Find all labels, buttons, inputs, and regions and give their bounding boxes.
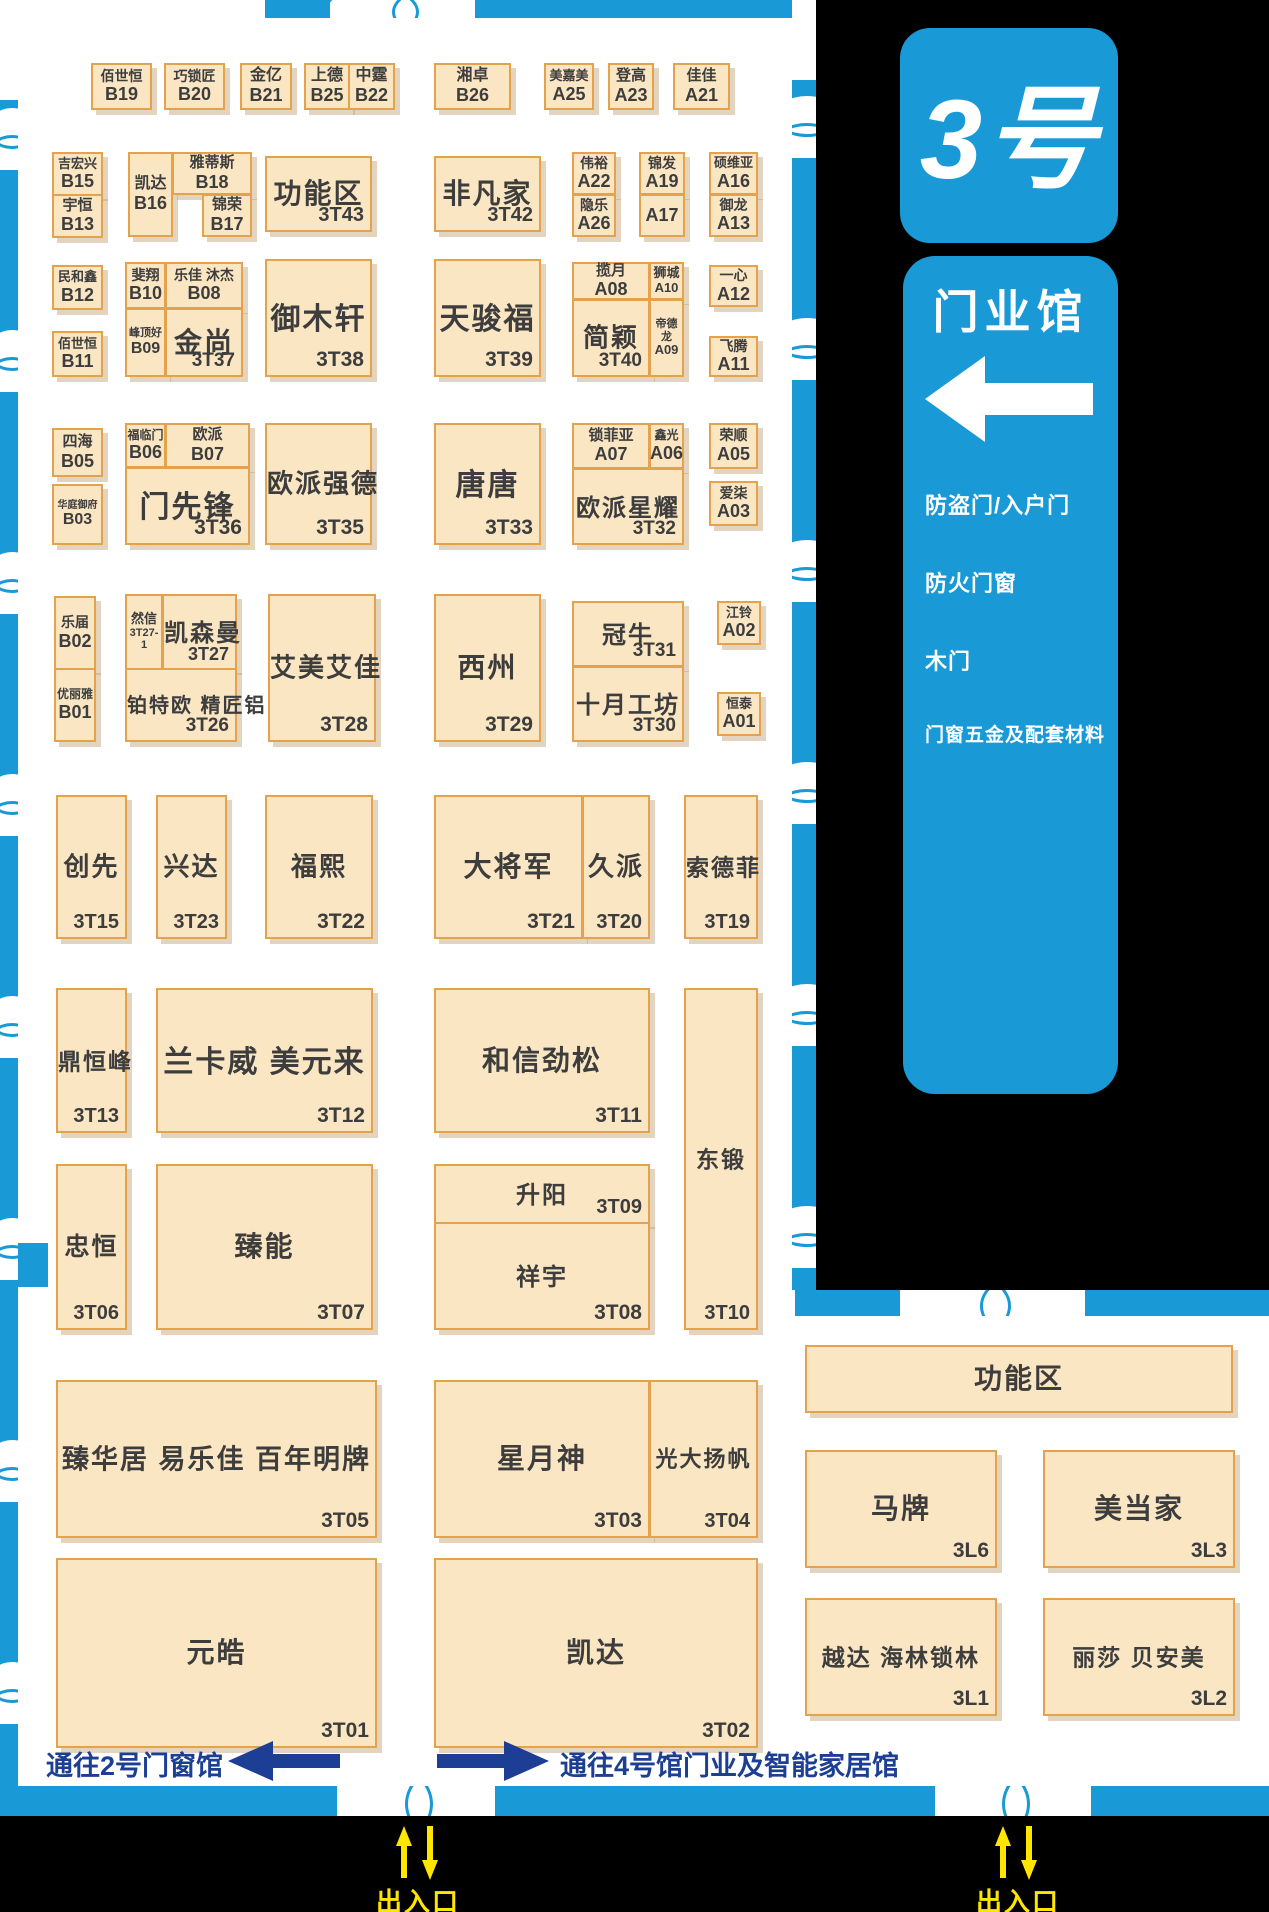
booth-3T22: 福熙3T22 [265,795,373,939]
booth-A16: 硕维亚A16 [709,152,758,195]
booth-name: 宇恒 [62,198,92,215]
gate-lens [0,135,18,170]
gate-lens [405,1786,495,1816]
booth-3L1: 越达 海林锁林3L1 [805,1598,997,1716]
booth-B11: 佰世恒B11 [52,331,103,377]
booth-name: 乐佳 沐杰 [174,268,234,284]
booth-name: 雅蒂斯 [189,155,234,172]
booth-A09: 帝德龙A09 [649,299,684,377]
booth-3T40: 简颖3T40 [572,299,650,377]
booth-name: 一心 [720,268,748,284]
gate-marker [792,540,816,602]
booth-id: B20 [178,84,211,104]
gate-marker [0,552,18,614]
booth-id: A08 [594,279,627,299]
booth-id: A05 [717,444,750,464]
gate-lens [0,1467,18,1502]
booth-id: 3T04 [704,1510,750,1533]
booth-id: A13 [717,213,750,233]
booth-B07: 欧派B07 [165,423,250,468]
booth-id: 3T43 [318,204,364,227]
booth-id: 3T09 [596,1196,642,1219]
booth-id: B16 [134,193,167,213]
booth-A11: 飞腾A11 [709,336,758,377]
border-strip-middle [792,80,816,1290]
booth-name: 御龙 [720,198,748,214]
gate-lens [392,0,475,18]
booth-name: 帝德龙 [651,318,682,343]
booth-3T06: 忠恒3T06 [56,1164,127,1330]
arrow-left-icon [228,1741,340,1786]
gate-lens [0,579,18,614]
booth-id: B07 [191,444,224,464]
booth-3T43: 功能区3T43 [265,156,372,232]
booth-id: B25 [310,85,343,105]
booth-name: 佰世恒 [101,69,143,85]
booth-id: A12 [717,284,750,304]
booth-name: 乐届 [61,615,89,631]
booth-name: 硕维亚 [714,156,753,171]
booth-3T32: 欧派星耀3T32 [572,468,684,545]
booth-3T13: 鼎恒峰3T13 [56,988,127,1133]
hall-name-label: 门业馆 [903,276,1118,342]
booth-id: 3T35 [316,516,364,540]
booth-3T09: 升阳3T09 [434,1164,650,1224]
booth-id: 3T03 [594,1509,642,1533]
booth-id: 3T31 [633,640,676,662]
booth-name: 凯森曼 [164,613,235,648]
booth-name: 吉宏兴 [58,157,97,172]
to-hall2-label: 通往2号门窗馆 [46,1744,223,1783]
booth-id: 3T30 [633,715,676,737]
hall-number-label: 3号 [920,49,1098,211]
booth-id: 3T02 [702,1719,750,1743]
booth-B09: 峰顶好B09 [125,308,166,377]
booth-id: B06 [129,442,162,462]
booth-A03: 爱柒A03 [709,481,758,526]
gate-lens [0,1023,18,1058]
booth-3T37: 金尚3T37 [165,308,243,377]
booth-id: B08 [187,283,220,303]
booth-3T05: 臻华居 易乐佳 百年明牌3T05 [56,1380,377,1538]
booth-id: B03 [63,511,92,529]
booth-id: A03 [717,501,750,521]
booth-name: 然信 [131,612,157,627]
booth-id: B01 [58,702,91,722]
booth-name: 凯达 [134,175,166,193]
booth-name: 民和鑫 [58,270,97,285]
category-item: 门窗五金及配套材料 [925,720,1105,747]
category-item: 防火门窗 [925,566,1017,598]
booth-B08: 乐佳 沐杰B08 [165,262,243,309]
booth-3T27-1: 然信3T27-1 [125,594,163,670]
gate-lens [0,1245,18,1280]
gate-marker [330,0,475,18]
booth-id: A26 [577,213,610,233]
booth-name: 马牌 [807,1487,995,1527]
booth-3T23: 兴达3T23 [156,795,227,939]
booth-id: 3T19 [704,911,750,934]
gate-lens [0,357,18,392]
gate-marker [0,108,18,170]
entrance-label: 出入口 [976,1882,1060,1912]
booth-id: 3T37 [192,350,235,372]
gate-marker [792,984,816,1046]
booth-name: 欧派强德 [267,464,370,501]
booth-name: 巧锁匠 [174,69,216,85]
arrow-right-icon [437,1741,549,1786]
gate-marker [0,330,18,392]
booth-name: 丽莎 贝安美 [1045,1638,1233,1672]
category-item: 木门 [925,644,971,676]
gate-lens [792,1233,816,1268]
booth-B19: 佰世恒B19 [91,63,152,110]
booth-name: 鑫光 [654,429,678,442]
booth-id: 3T06 [73,1302,119,1325]
gate-lens [792,789,816,824]
booth-id: B26 [456,85,489,105]
booth-id: 3T42 [487,204,533,227]
booth-id: B12 [61,285,94,305]
booth-3T12: 兰卡威 美元来3T12 [156,988,373,1133]
booth-id: B19 [105,84,138,104]
booth-B06: 福临门B06 [125,423,166,468]
booth-id: A19 [645,171,678,191]
booth-name: 兴达 [158,847,225,884]
booth-A23: 登高A23 [608,63,654,110]
booth-A22: 伟裕A22 [572,152,616,195]
booth-name: 福临门 [127,429,163,442]
booth-name: 优丽雅 [57,688,93,701]
booth-3T28: 艾美艾佳3T28 [268,594,376,742]
booth-3T29: 西州3T29 [434,594,541,742]
booth-name: 江铃 [726,606,752,621]
booth-name: 伟裕 [580,156,608,172]
booth-name: 御木轩 [267,294,370,338]
booth-name: 美嘉美 [549,69,588,84]
booth-A06: 鑫光A06 [649,423,684,469]
gate-marker [792,96,816,158]
gate-lens [792,567,816,602]
booth-id: B02 [58,631,91,651]
booth-id: B15 [61,171,94,191]
booth-name: 荣顺 [720,428,748,444]
booth-B20: 巧锁匠B20 [164,63,225,110]
booth-id: B09 [131,340,160,358]
gate-marker [337,1786,495,1816]
booth-name: 越达 海林锁林 [807,1638,995,1672]
booth-B05: 四海B05 [52,428,103,477]
gate-marker [792,762,816,824]
booth-id: 3T13 [73,1105,119,1128]
booth-id: B17 [210,214,243,234]
booth-name: 功能区 [807,1357,1231,1397]
booth-name: 创先 [58,847,125,884]
booth-id: 3L1 [953,1687,989,1711]
gate-lens [792,1011,816,1046]
booth-3T21: 大将军3T21 [434,795,583,939]
booth-A19: 锦发A19 [639,152,685,195]
booth-id: A02 [722,620,755,640]
booth-id: 3T08 [594,1301,642,1325]
booth-name: 索德菲 [686,848,756,882]
booth-name: 鼎恒峰 [58,1042,125,1076]
booth-name: 锦发 [648,156,676,172]
booth-id: A10 [655,281,679,296]
category-item: 防盗门/入户门 [925,488,1070,520]
booth-B26: 湘卓B26 [434,63,511,110]
booth-B16: 凯达B16 [128,152,173,237]
booth-name: 天骏福 [436,294,539,338]
booth-id: A16 [717,171,750,191]
hall-number-badge: 3号 [900,28,1118,243]
booth-功能区: 功能区 [805,1345,1233,1413]
booth-name: 西州 [436,646,539,686]
left-arrow-icon [925,356,1093,447]
entrance-label: 出入口 [376,1882,460,1912]
booth-3T33: 唐唐3T33 [434,423,541,545]
booth-name: 峰顶好 [129,327,162,339]
booth-id: 3T23 [173,911,219,934]
booth-id: B22 [355,85,388,105]
booth-A08: 揽月A08 [572,262,650,300]
entrance-arrows-icon [396,1826,438,1885]
gate-marker [0,1662,18,1724]
booth-id: 3T38 [316,348,364,372]
booth-id: 3T20 [596,911,642,934]
booth-B17: 锦荣B17 [202,194,252,237]
booth-id: A06 [650,443,683,463]
booth-3L2: 丽莎 贝安美3L2 [1043,1598,1235,1716]
booth-3T03: 星月神3T03 [434,1380,650,1538]
booth-B21: 金亿B21 [240,63,292,110]
booth-id: 3T32 [633,518,676,540]
booth-name: 和信劲松 [436,1039,648,1079]
booth-name: 揽月 [596,263,626,280]
booth-id: 3T40 [599,350,642,372]
booth-id: B13 [61,214,94,234]
booth-name: 元皓 [58,1631,375,1671]
booth-id: A21 [685,85,718,105]
booth-name: 祥宇 [436,1257,648,1292]
gate-marker [0,1218,18,1280]
booth-A01: 恒泰A01 [717,692,761,736]
booth-B10: 斐翔B10 [125,262,166,309]
booth-name: 华庭御府 [58,500,98,511]
booth-3T10: 东锻3T10 [684,988,758,1330]
booth-3T30: 十月工坊3T30 [572,666,684,742]
booth-name: 佳佳 [686,68,716,85]
gate-marker [935,1786,1091,1816]
booth-3T27: 凯森曼3T27 [162,594,237,670]
booth-name: 凯达 [436,1631,756,1671]
booth-id: 3T36 [194,516,242,540]
booth-name: 锦荣 [212,197,242,214]
booth-id: B18 [195,172,228,192]
booth-A21: 佳佳A21 [673,63,730,110]
booth-id: 3T15 [73,911,119,934]
booth-id: 3T27 [188,644,229,665]
to-hall4-label: 通往4号馆门业及智能家居馆 [560,1744,899,1783]
booth-id: 3L3 [1191,1539,1227,1563]
booth-A26: 隐乐A26 [572,194,616,237]
gate-marker [900,1290,1085,1316]
booth-name: 久派 [584,847,648,884]
booth-name: 光大扬帆 [651,1441,756,1473]
booth-3T07: 臻能3T07 [156,1164,373,1330]
gate-marker [0,1440,18,1502]
gate-lens [0,801,18,836]
gate-lens [1002,1786,1091,1816]
booth-3T26: 铂特欧 精匠铝3T26 [125,668,237,742]
booth-id: B11 [61,351,93,371]
booth-3T02: 凯达3T02 [434,1558,758,1748]
booth-name: 湘卓 [456,67,488,85]
booth-name: 隐乐 [580,198,608,214]
booth-B12: 民和鑫B12 [52,265,103,310]
booth-id: 3T10 [704,1302,750,1325]
gate-lens [792,123,816,158]
booth-id: A17 [645,205,678,225]
booth-id: A25 [552,84,585,104]
booth-3T15: 创先3T15 [56,795,127,939]
booth-A07: 锁菲亚A07 [572,423,650,469]
booth-B02: 乐届B02 [54,596,96,670]
booth-name: 飞腾 [720,339,748,355]
booth-id: 3L6 [953,1539,989,1563]
booth-3T38: 御木轩3T38 [265,259,372,377]
booth-A12: 一心A12 [709,265,758,307]
booth-A17: A17 [639,194,685,237]
booth-name: 星月神 [436,1437,648,1477]
booth-name: 恒泰 [726,697,752,712]
booth-id: A09 [655,343,679,358]
booth-id: 3T11 [595,1104,642,1128]
booth-id: 3T29 [485,713,533,737]
booth-name: 美当家 [1045,1487,1233,1527]
booth-A02: 江铃A02 [717,601,761,645]
booth-3T11: 和信劲松3T11 [434,988,650,1133]
booth-A13: 御龙A13 [709,194,758,237]
booth-id: 3T26 [186,715,229,737]
booth-name: 臻华居 易乐佳 百年明牌 [58,1438,375,1477]
booth-3L6: 马牌3L6 [805,1450,997,1568]
gate-lens [980,1290,1085,1316]
booth-name: 上德 [311,67,343,85]
booth-name: 四海 [62,434,92,451]
booth-id: 3T22 [317,910,365,934]
booth-name: 铂特欧 精匠铝 [127,689,235,718]
booth-B18: 雅蒂斯B18 [172,152,252,195]
gate-lens [792,345,816,380]
booth-name: 大将军 [436,845,581,885]
booth-name: 爱柒 [720,486,748,502]
booth-name: 金亿 [250,67,282,85]
booth-A10: 狮城A10 [649,262,684,300]
booth-id: 3T01 [321,1719,369,1743]
booth-id: 3T05 [321,1509,369,1533]
booth-id: 3T39 [485,348,533,372]
booth-id: 3T33 [485,516,533,540]
booth-id: 3T12 [317,1104,365,1128]
booth-3T01: 元皓3T01 [56,1558,377,1748]
booth-name: 中霆 [355,67,387,85]
booth-name: 忠恒 [58,1227,125,1263]
gate-lens [0,1689,18,1724]
booth-name: 欧派星耀 [574,487,682,522]
booth-name: 斐翔 [132,268,160,284]
booth-id: 3T21 [527,910,575,934]
booth-id: B05 [61,451,94,471]
booth-3T19: 索德菲3T19 [684,795,758,939]
gate-marker [0,774,18,836]
booth-id: 3T28 [320,713,368,737]
booth-A05: 荣顺A05 [709,423,758,469]
gate-marker [792,1206,816,1268]
gate-marker [792,318,816,380]
hall-name-panel: 门业馆 防盗门/入户门防火门窗木门门窗五金及配套材料 [903,256,1118,1094]
booth-name: 艾美艾佳 [270,648,374,685]
booth-3L3: 美当家3L3 [1043,1450,1235,1568]
booth-name: 臻能 [158,1225,371,1265]
booth-id: B21 [249,85,282,105]
booth-B01: 优丽雅B01 [54,668,96,742]
booth-name: 兰卡威 美元来 [158,1036,371,1080]
booth-3T08: 祥宇3T08 [434,1222,650,1330]
booth-id: 3T27-1 [127,627,161,652]
booth-id: B10 [129,283,162,303]
booth-3T31: 冠牛3T31 [572,601,684,667]
booth-id: A07 [594,444,627,464]
booth-B13: 宇恒B13 [52,194,103,238]
booth-3T20: 久派3T20 [582,795,650,939]
booth-name: 东锻 [686,1140,756,1174]
booth-id: A11 [717,354,749,374]
booth-name: 福熙 [267,847,371,884]
booth-3T42: 非凡家3T42 [434,156,541,232]
booth-name: 锁菲亚 [588,428,633,445]
booth-3T39: 天骏福3T39 [434,259,541,377]
bottom-black-background [0,1816,1269,1912]
booth-id: 3T07 [317,1301,365,1325]
booth-3T36: 门先锋3T36 [125,467,250,545]
booth-name: 佰世恒 [58,337,97,352]
entrance-arrows-icon [995,1826,1037,1885]
booth-A25: 美嘉美A25 [544,63,594,110]
booth-name: 欧派 [192,427,222,444]
booth-name: 唐唐 [436,460,539,504]
booth-id: 3L2 [1191,1687,1227,1711]
floor-map: 佰世恒B19巧锁匠B20金亿B21上德B25中霆B22湘卓B26美嘉美A25登高… [0,0,1269,1912]
booth-B22: 中霆B22 [348,63,395,110]
booth-3T35: 欧派强德3T35 [265,423,372,545]
booth-name: 登高 [616,68,646,85]
booth-id: A22 [577,171,610,191]
booth-B25: 上德B25 [304,63,350,110]
booth-name: 狮城 [653,266,679,281]
booth-id: A01 [722,711,755,731]
gate-marker [0,996,18,1058]
booth-B15: 吉宏兴B15 [52,152,103,196]
booth-id: A23 [614,85,647,105]
booth-3T04: 光大扬帆3T04 [649,1380,758,1538]
booth-B03: 华庭御府B03 [52,484,103,545]
